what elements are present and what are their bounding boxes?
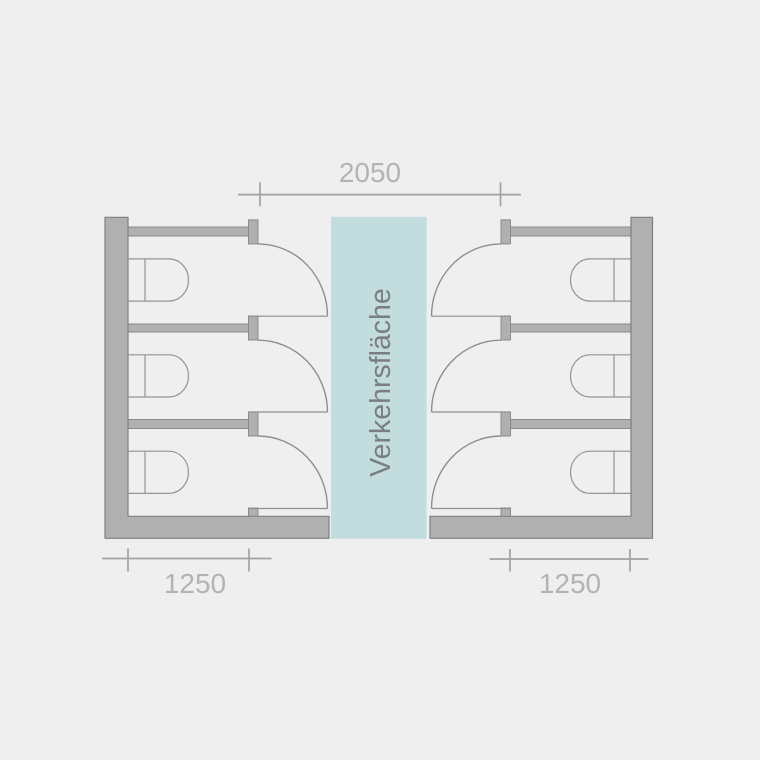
svg-text:Verkehrsfläche: Verkehrsfläche bbox=[365, 288, 397, 477]
svg-text:2050: 2050 bbox=[339, 157, 401, 188]
svg-text:1250: 1250 bbox=[164, 568, 226, 599]
svg-text:1250: 1250 bbox=[539, 568, 601, 599]
